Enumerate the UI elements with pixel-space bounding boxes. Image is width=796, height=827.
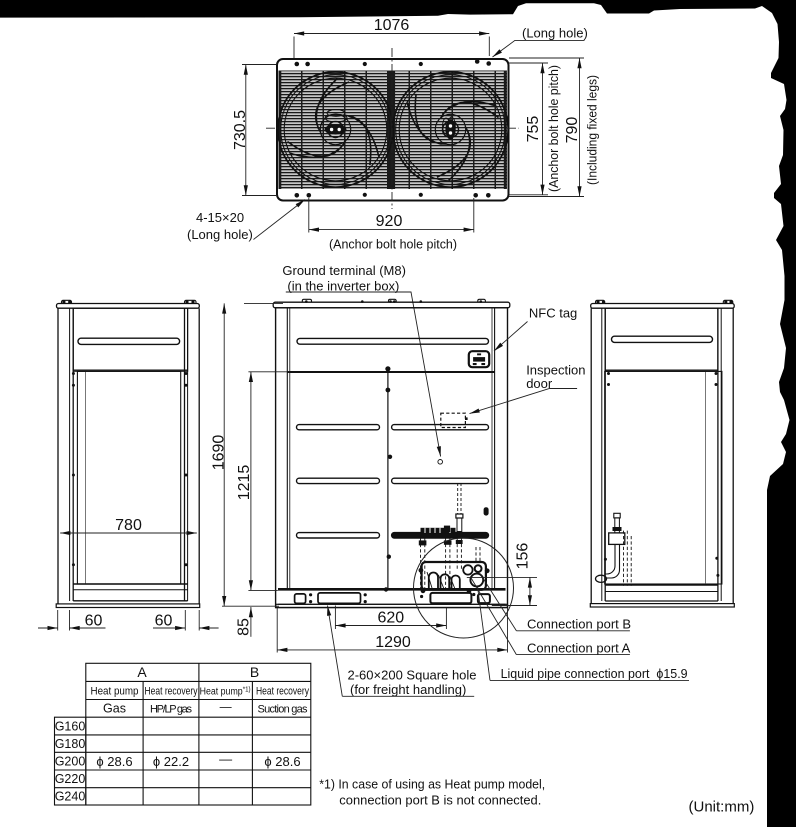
svg-text:B: B (250, 664, 259, 680)
svg-text:Heat recovery: Heat recovery (145, 686, 198, 698)
svg-text:85: 85 (236, 618, 253, 636)
svg-text:—: — (219, 752, 232, 767)
svg-text:60: 60 (155, 613, 173, 630)
svg-text:780: 780 (115, 517, 142, 534)
svg-text:—: — (220, 700, 232, 714)
svg-text:1215: 1215 (236, 465, 253, 501)
svg-text:Liquid pipe connection port ϕ: Liquid pipe connection port ϕ15.9 (501, 666, 688, 681)
svg-text:790: 790 (564, 117, 581, 144)
svg-text:G160: G160 (55, 720, 86, 734)
svg-text:NFC tag: NFC tag (529, 306, 577, 321)
svg-text:(Long hole): (Long hole) (187, 227, 253, 242)
svg-text:G180: G180 (55, 737, 86, 751)
svg-text:ϕ 22.2: ϕ 22.2 (153, 754, 189, 769)
svg-text:620: 620 (377, 610, 404, 627)
svg-text:920: 920 (376, 213, 403, 230)
svg-text:(Unit:mm): (Unit:mm) (689, 799, 755, 816)
svg-text:HP/LP gas: HP/LP gas (150, 704, 193, 716)
svg-text:Gas: Gas (103, 702, 126, 716)
svg-text:1076: 1076 (374, 17, 410, 34)
svg-text:Heat recovery: Heat recovery (256, 686, 309, 698)
svg-text:1690: 1690 (210, 435, 227, 471)
svg-text:(in the inverter box): (in the inverter box) (287, 279, 399, 294)
svg-text:G220: G220 (55, 772, 86, 786)
svg-text:60: 60 (85, 613, 103, 630)
svg-text:2-60×200 Square hole: 2-60×200 Square hole (348, 668, 477, 683)
svg-text:Connection port B: Connection port B (527, 617, 631, 632)
svg-text:G240: G240 (55, 790, 86, 804)
svg-text:connection port B is not conne: connection port B is not connected. (339, 793, 541, 808)
svg-text:156: 156 (514, 543, 531, 570)
svg-text:A: A (137, 664, 147, 680)
svg-text:(Including fixed legs): (Including fixed legs) (585, 75, 600, 185)
svg-text:ϕ 28.6: ϕ 28.6 (264, 754, 300, 769)
svg-text:1290: 1290 (375, 634, 411, 651)
svg-text:(for freight handling): (for freight handling) (350, 682, 466, 697)
svg-text:730.5: 730.5 (232, 110, 249, 150)
svg-text:G200: G200 (55, 755, 86, 769)
svg-text:(Anchor bolt hole pitch): (Anchor bolt hole pitch) (329, 237, 457, 252)
svg-text:ϕ 28.6: ϕ 28.6 (96, 754, 132, 769)
svg-text:4-15×20: 4-15×20 (196, 210, 244, 225)
svg-text:(Long hole): (Long hole) (522, 26, 588, 41)
svg-text:755: 755 (525, 116, 542, 143)
svg-text:*1) In case of using as Heat p: *1) In case of using as Heat pump model, (319, 777, 545, 792)
svg-text:(Anchor bolt hole pitch): (Anchor bolt hole pitch) (546, 65, 561, 192)
svg-text:Ground terminal (M8): Ground terminal (M8) (282, 263, 406, 278)
svg-text:Suction gas: Suction gas (258, 704, 309, 716)
svg-text:Heat pump: Heat pump (91, 686, 139, 698)
svg-text:Connection port A: Connection port A (527, 640, 631, 655)
